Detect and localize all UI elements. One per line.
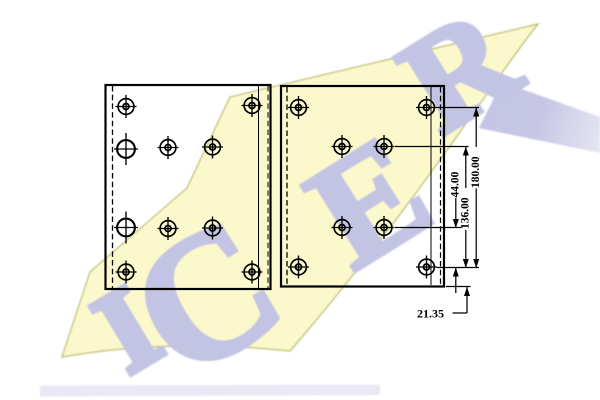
svg-text:136.00: 136.00 — [460, 197, 472, 229]
svg-text:21.35: 21.35 — [417, 307, 444, 321]
svg-text:180.00: 180.00 — [470, 156, 482, 188]
svg-text:44.00: 44.00 — [450, 171, 462, 197]
